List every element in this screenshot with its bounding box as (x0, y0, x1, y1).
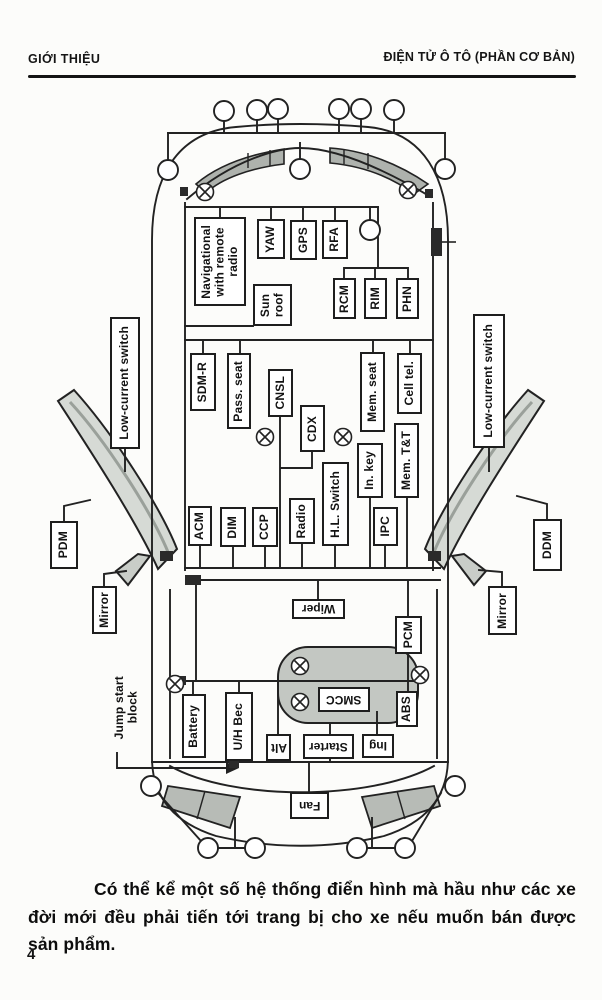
module-alt: Alt (266, 734, 291, 761)
module-nav-radio: Navigational with remote radio (194, 217, 246, 306)
module-acm: ACM (188, 506, 212, 546)
module-mem-seat: Mem. seat (360, 352, 385, 432)
module-pcm: PCM (395, 616, 422, 654)
module-gps: GPS (290, 220, 317, 260)
front-lamp-right (362, 786, 440, 828)
body-paragraph: Có thể kể một số hệ thống điển hình mà h… (28, 876, 576, 959)
module-smcc: SMCC (318, 687, 370, 712)
module-pass-seat: Pass. seat (227, 353, 251, 429)
mirror-left-shape (116, 554, 150, 585)
module-phn: PHN (396, 278, 419, 319)
module-sdm-r: SDM-R (190, 353, 216, 411)
module-dim: DIM (220, 507, 246, 547)
module-pdm: PDM (50, 521, 78, 569)
module-rim: RIM (364, 278, 387, 319)
module-yaw: YAW (257, 219, 285, 259)
module-sun-roof: Sun roof (253, 284, 292, 326)
module-low-current-switch-right: Low-current switch (473, 314, 505, 448)
module-ipc: IPC (373, 507, 398, 546)
module-cdx: CDX (300, 405, 325, 452)
car-electronics-diagram: Navigational with remote radio YAW GPS R… (0, 0, 602, 875)
module-abs: ABS (396, 691, 418, 727)
module-mirror-left: Mirror (92, 586, 117, 634)
module-uh-bec: U/H Bec (225, 692, 253, 761)
module-fan: Fan (290, 792, 329, 819)
module-hl-switch: H.L. Switch (322, 462, 349, 546)
module-ddm: DDM (533, 519, 562, 571)
module-wiper: Wiper (292, 599, 345, 619)
module-rfa: RFA (322, 220, 348, 259)
module-low-current-switch-left: Low-current switch (110, 317, 140, 449)
module-cell-tel: Cell tel. (397, 353, 422, 414)
module-mirror-right: Mirror (488, 586, 517, 635)
module-cnsl: CNSL (268, 369, 293, 417)
module-ccp: CCP (252, 507, 278, 547)
module-ing: Ing (362, 734, 394, 758)
module-mem-tt: Mem. T&T (394, 423, 419, 498)
label-jump-start-block: Jump start block (106, 663, 146, 753)
front-lamp-left (162, 786, 240, 828)
module-rcm: RCM (333, 278, 356, 319)
module-radio: Radio (289, 498, 315, 544)
module-battery: Battery (182, 694, 206, 758)
page-number: 4 (27, 946, 35, 963)
module-in-key: In. key (357, 443, 383, 498)
module-starter: Starter (303, 734, 354, 759)
book-page: GIỚI THIỆU ĐIỆN TỬ Ô TÔ (PHẦN CƠ BẢN) (0, 0, 602, 1000)
